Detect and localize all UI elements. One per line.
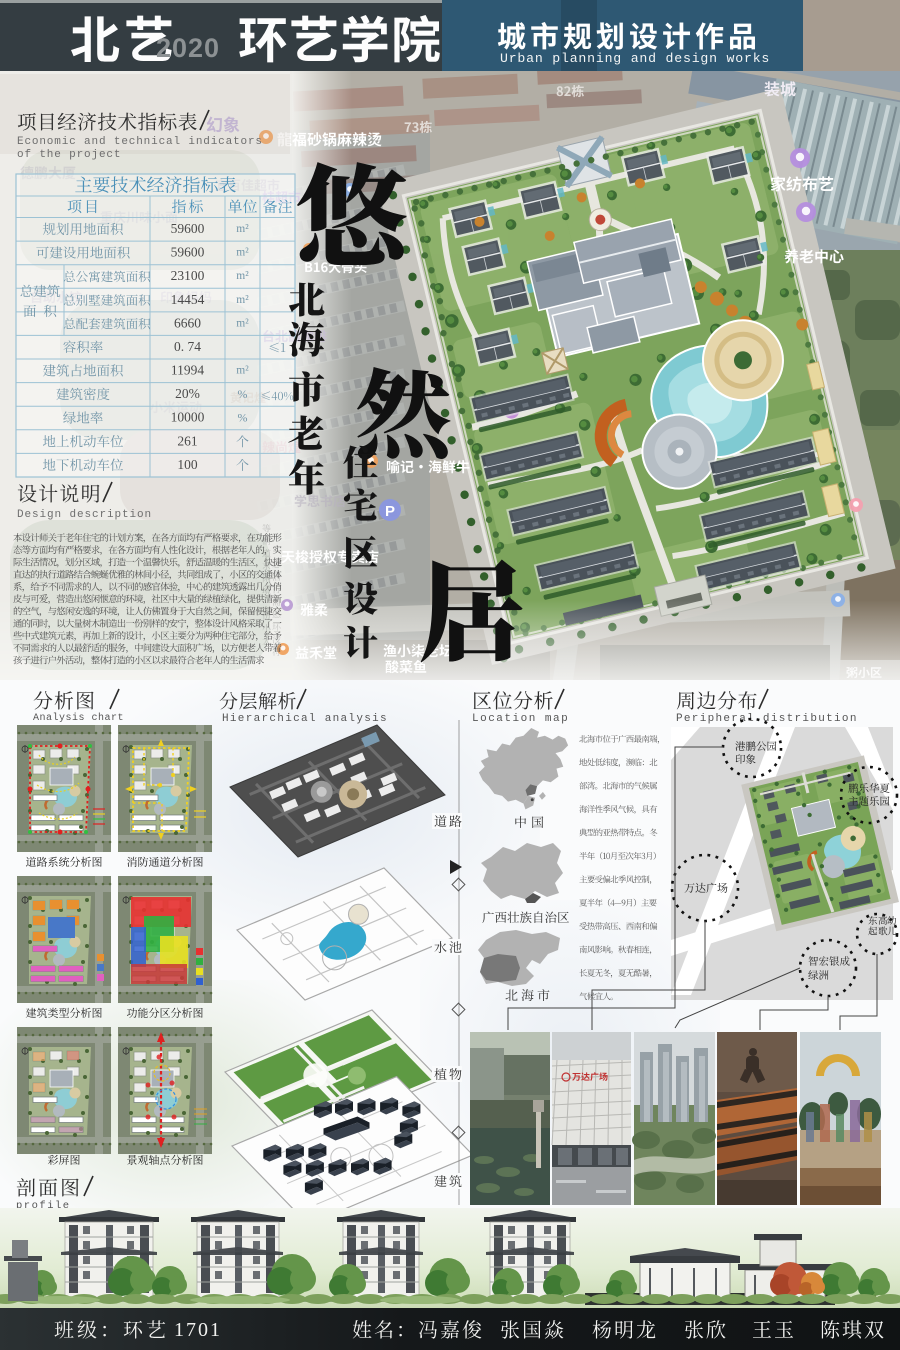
svg-text:P: P [385,503,395,520]
svg-text:6660: 6660 [174,315,201,330]
svg-text:m²: m² [236,247,249,259]
svg-text:261: 261 [177,433,197,448]
svg-text:Design description: Design description [17,509,152,521]
svg-text:m²: m² [236,317,249,329]
svg-text:1701: 1701 [174,1319,222,1341]
svg-text:0. 74: 0. 74 [174,339,201,354]
svg-text:14454: 14454 [171,292,205,307]
svg-text:%: % [238,387,248,401]
svg-text:of the project: of the project [17,149,121,161]
svg-text:10000: 10000 [171,410,205,425]
svg-text:%: % [238,411,248,425]
svg-text:11994: 11994 [171,363,204,378]
svg-text:Urban planning and design work: Urban planning and design works [500,51,770,66]
svg-text:m²: m² [236,223,249,235]
svg-text:20%: 20% [175,386,200,401]
svg-text:59600: 59600 [171,221,205,236]
svg-text:Location map: Location map [472,713,569,725]
svg-text:m²: m² [236,365,249,377]
svg-text:23100: 23100 [171,268,205,283]
svg-text:59600: 59600 [171,245,205,260]
svg-text:m²: m² [236,294,249,306]
svg-text:100: 100 [177,457,198,472]
svg-text:m²: m² [236,270,249,282]
svg-text:Analysis chart: Analysis chart [33,712,124,724]
svg-text:Economic and technical indicat: Economic and technical indicators [17,136,263,148]
svg-text:Hierarchical analysis: Hierarchical analysis [222,713,388,725]
svg-text:2020: 2020 [156,33,220,63]
